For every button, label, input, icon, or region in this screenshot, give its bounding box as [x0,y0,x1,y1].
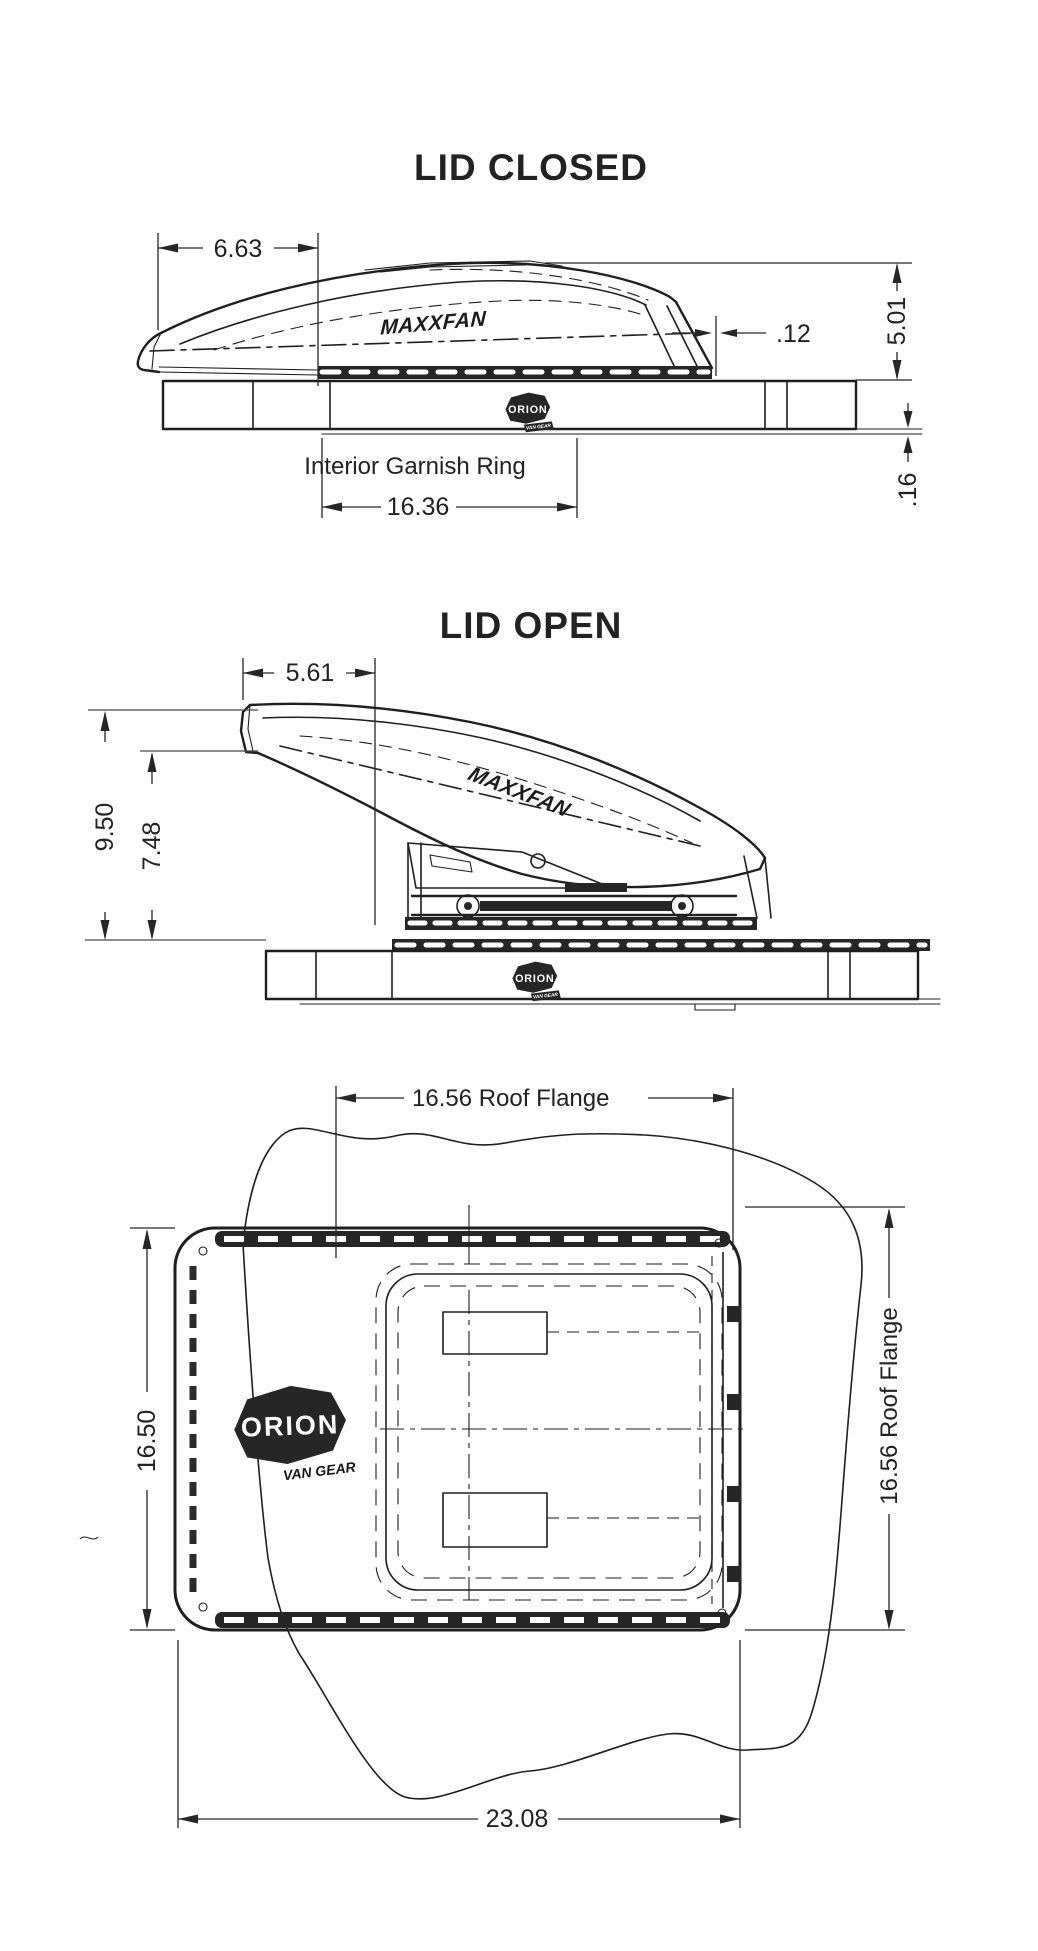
maxxfan-technical-drawing: LID CLOSED [0,0,1038,1951]
lid-closed-view: LID CLOSED [138,147,922,521]
orion-logo-text-top: ORION [240,1409,340,1442]
orion-logo-closed: ORION VAN GEAR [505,393,553,433]
garnish-ring-label: Interior Garnish Ring [304,453,525,480]
spec-sheet-page: LID CLOSED [0,0,1038,1951]
dim-overall-width-label: 23.08 [486,1805,549,1833]
top-view: ORION VAN GEAR 16.56 Roof Flange 16.50 1… [80,1085,905,1833]
dim-flange-depth-right-label: 16.56 Roof Flange [876,1307,903,1504]
lid-open-title: LID OPEN [440,605,623,646]
dim-flange-width-top-label: 16.56 Roof Flange [412,1085,609,1112]
lid-closed-title: LID CLOSED [414,147,648,188]
dim-front-width-label: 6.63 [214,235,263,263]
lid-open-dimensions: 5.61 9.50 7.48 [85,658,375,940]
dim-garnish-width-label: 16.36 [387,493,450,521]
orion-logo-text-closed: ORION [508,404,547,416]
scan-artifact-squiggle [80,1537,98,1539]
dim-body-depth-label: 16.50 [133,1410,161,1473]
lid-open-view: LID OPEN [85,605,940,1010]
maxxfan-logo-open: MAXXFAN [464,763,575,821]
orion-logo-top: ORION VAN GEAR [233,1384,358,1485]
dim-height-label: 5.01 [883,297,911,346]
dim-rear-gap-label: .12 [776,320,811,348]
dim-lid-height-label: 7.48 [138,822,166,871]
maxxfan-logo-closed: MAXXFAN [380,307,487,339]
dim-front-offset-label: 5.61 [286,659,335,687]
top-view-dimensions: 16.56 Roof Flange 16.50 16.56 Roof Flang… [130,1085,905,1833]
dim-flange-thickness-label: .16 [894,473,922,508]
lid-open-geometry [241,704,940,1010]
dim-total-height-label: 9.50 [91,803,119,852]
orion-logo-text-open: ORION [515,973,554,985]
orion-logo-open: ORION VAN GEAR [512,962,560,1002]
